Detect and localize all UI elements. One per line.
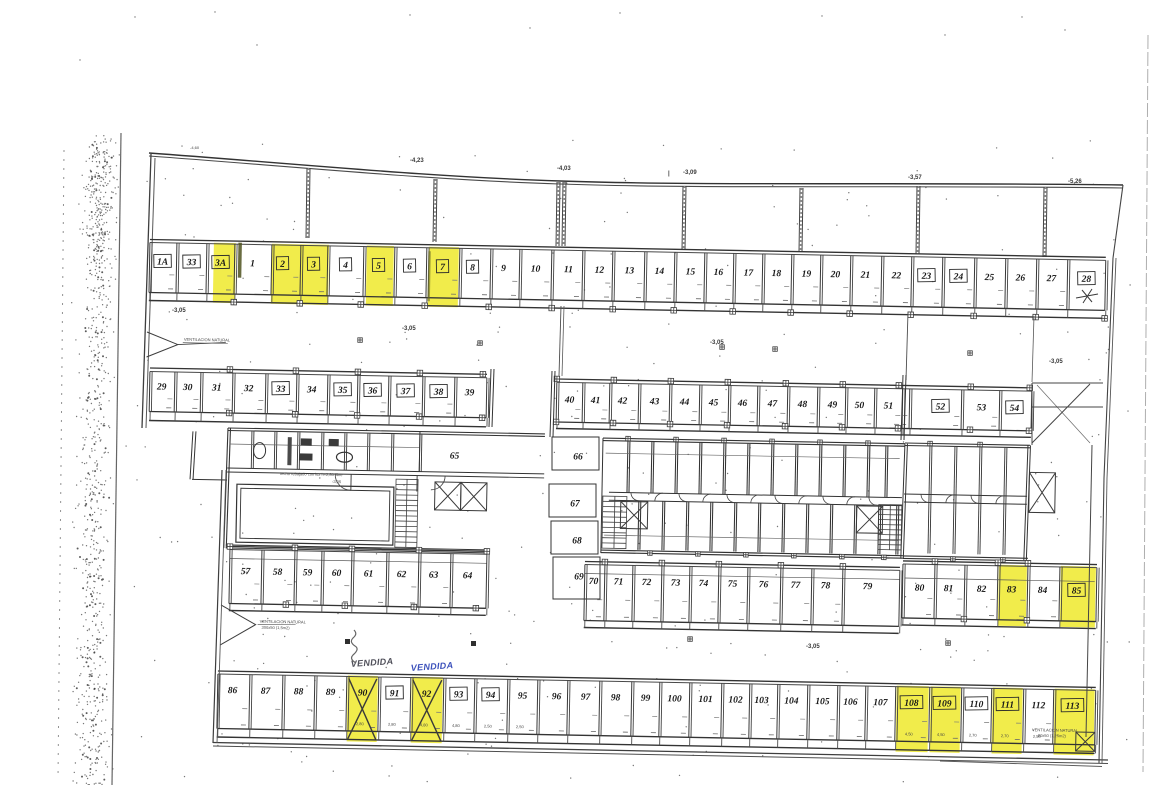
- svg-text:88: 88: [294, 687, 304, 697]
- svg-text:12: 12: [595, 266, 605, 276]
- svg-text:2,70: 2,70: [969, 733, 978, 738]
- svg-text:10: 10: [531, 265, 541, 275]
- svg-text:38: 38: [433, 388, 444, 398]
- svg-text:92: 92: [422, 690, 432, 700]
- svg-text:46: 46: [737, 399, 748, 409]
- svg-text:300x50 (1,5m2): 300x50 (1,5m2): [262, 625, 291, 631]
- svg-text:-3,57: -3,57: [908, 175, 922, 181]
- svg-text:17: 17: [744, 268, 755, 278]
- svg-text:41: 41: [590, 396, 601, 406]
- svg-text:60: 60: [332, 569, 342, 579]
- svg-text:86: 86: [228, 686, 238, 696]
- svg-text:51: 51: [884, 402, 894, 412]
- svg-text:4: 4: [342, 261, 348, 271]
- svg-text:50: 50: [855, 401, 865, 411]
- svg-text:109: 109: [937, 699, 952, 709]
- svg-text:102: 102: [728, 695, 743, 705]
- svg-text:4,80: 4,80: [452, 723, 461, 728]
- svg-text:5: 5: [376, 262, 381, 272]
- svg-text:2,70: 2,70: [1001, 733, 1010, 738]
- svg-text:37: 37: [400, 387, 412, 397]
- svg-text:9: 9: [501, 264, 506, 274]
- svg-text:1: 1: [250, 259, 255, 269]
- svg-text:-4,60: -4,60: [190, 145, 200, 150]
- svg-text:94: 94: [486, 691, 496, 701]
- svg-text:58: 58: [273, 568, 283, 578]
- svg-text:59: 59: [303, 568, 313, 578]
- svg-text:43: 43: [649, 397, 660, 407]
- svg-text:54: 54: [1010, 404, 1020, 414]
- svg-text:23: 23: [921, 272, 932, 282]
- svg-text:112: 112: [1031, 701, 1045, 711]
- svg-text:45: 45: [708, 398, 719, 408]
- svg-text:4,50: 4,50: [937, 732, 946, 737]
- svg-text:76: 76: [759, 580, 769, 590]
- svg-text:-3,05: -3,05: [806, 644, 820, 650]
- svg-text:49: 49: [827, 400, 838, 410]
- svg-text:97: 97: [581, 693, 592, 703]
- svg-text:18: 18: [772, 269, 782, 279]
- svg-text:99: 99: [641, 694, 651, 704]
- svg-text:80x50 (1,25m2): 80x50 (1,25m2): [1038, 733, 1067, 739]
- svg-text:103: 103: [754, 696, 769, 706]
- svg-text:105: 105: [815, 697, 830, 707]
- svg-text:78: 78: [821, 581, 831, 591]
- svg-text:33: 33: [275, 385, 286, 395]
- svg-text:69: 69: [574, 572, 584, 582]
- svg-text:2,50: 2,50: [516, 724, 525, 729]
- svg-text:13: 13: [625, 266, 635, 276]
- svg-text:52: 52: [936, 402, 946, 412]
- svg-text:36: 36: [367, 386, 378, 396]
- svg-text:67: 67: [570, 499, 581, 509]
- svg-text:31: 31: [211, 384, 222, 394]
- svg-text:2: 2: [279, 260, 285, 270]
- svg-text:63: 63: [429, 571, 439, 581]
- svg-text:48: 48: [797, 400, 808, 410]
- svg-text:40: 40: [564, 396, 575, 406]
- svg-text:53: 53: [977, 403, 987, 413]
- svg-text:47: 47: [767, 399, 779, 409]
- svg-text:61: 61: [364, 569, 374, 579]
- svg-text:4,80: 4,80: [420, 722, 429, 727]
- svg-text:110: 110: [969, 700, 983, 710]
- svg-text:11: 11: [564, 265, 573, 275]
- svg-text:113: 113: [1065, 702, 1079, 712]
- svg-text:44: 44: [679, 398, 690, 408]
- svg-text:84: 84: [1038, 586, 1048, 596]
- svg-text:66: 66: [573, 452, 583, 462]
- svg-text:90: 90: [358, 689, 368, 699]
- svg-text:2,50: 2,50: [484, 723, 493, 728]
- svg-text:107: 107: [873, 698, 889, 708]
- svg-text:VENTILACION NATURAL: VENTILACION NATURAL: [184, 337, 231, 343]
- svg-text:24: 24: [953, 272, 964, 282]
- svg-text:79: 79: [863, 582, 873, 592]
- svg-text:-3,05: -3,05: [1049, 359, 1063, 365]
- svg-text:95: 95: [518, 692, 528, 702]
- svg-text:73: 73: [671, 579, 681, 589]
- svg-text:96: 96: [552, 692, 562, 702]
- svg-text:89: 89: [326, 688, 336, 698]
- svg-text:4,50: 4,50: [905, 731, 914, 736]
- svg-text:20: 20: [830, 270, 841, 280]
- svg-text:14: 14: [655, 267, 665, 277]
- svg-text:16: 16: [714, 268, 724, 278]
- svg-text:1A: 1A: [157, 258, 168, 268]
- svg-text:3A: 3A: [214, 259, 226, 269]
- svg-text:35: 35: [337, 386, 348, 396]
- svg-text:100: 100: [667, 694, 682, 704]
- svg-text:-3,05: -3,05: [402, 326, 416, 332]
- svg-text:25: 25: [984, 273, 995, 283]
- svg-text:15: 15: [686, 267, 696, 277]
- svg-text:65: 65: [450, 452, 460, 462]
- svg-text:34: 34: [306, 385, 317, 395]
- svg-text:39: 39: [464, 388, 475, 398]
- svg-text:32: 32: [243, 384, 254, 394]
- svg-text:72: 72: [642, 578, 652, 588]
- svg-text:27: 27: [1046, 274, 1058, 284]
- svg-text:3: 3: [310, 260, 316, 270]
- svg-text:68: 68: [572, 536, 582, 546]
- svg-text:-3,05: -3,05: [172, 308, 186, 314]
- svg-text:108: 108: [904, 699, 919, 709]
- svg-text:98: 98: [611, 693, 621, 703]
- svg-text:80: 80: [915, 584, 925, 594]
- svg-text:77: 77: [791, 581, 802, 591]
- svg-text:33: 33: [186, 258, 197, 268]
- svg-text:57: 57: [241, 567, 252, 577]
- svg-text:29: 29: [156, 383, 167, 393]
- svg-text:83: 83: [1007, 585, 1017, 595]
- svg-text:104: 104: [784, 696, 799, 706]
- svg-text:8: 8: [470, 263, 475, 273]
- svg-text:28: 28: [1081, 275, 1092, 285]
- svg-text:21: 21: [860, 271, 871, 281]
- svg-text:85: 85: [1072, 587, 1082, 597]
- svg-text:-4,03: -4,03: [557, 166, 571, 172]
- svg-text:2,80: 2,80: [356, 721, 365, 726]
- svg-text:30: 30: [182, 383, 193, 393]
- svg-text:2,80: 2,80: [388, 722, 397, 727]
- svg-text:62: 62: [397, 570, 407, 580]
- svg-text:74: 74: [699, 579, 709, 589]
- svg-text:81: 81: [944, 584, 954, 594]
- svg-text:19: 19: [802, 270, 812, 280]
- svg-text:106: 106: [843, 698, 858, 708]
- svg-text:82: 82: [977, 585, 987, 595]
- svg-text:111: 111: [1001, 701, 1014, 711]
- svg-text:75: 75: [728, 580, 738, 590]
- svg-text:-4,23: -4,23: [410, 158, 424, 164]
- svg-text:101: 101: [698, 695, 712, 705]
- svg-text:93: 93: [454, 690, 464, 700]
- svg-text:64: 64: [463, 571, 473, 581]
- svg-text:70: 70: [589, 577, 599, 587]
- svg-text:91: 91: [390, 689, 400, 699]
- svg-text:VENTILACION NATURAL: VENTILACION NATURAL: [260, 619, 307, 625]
- svg-text:42: 42: [617, 397, 628, 407]
- svg-text:71: 71: [614, 577, 624, 587]
- svg-text:6: 6: [407, 262, 412, 272]
- svg-text:26: 26: [1015, 274, 1026, 284]
- svg-text:-3,09: -3,09: [683, 170, 697, 176]
- svg-text:22: 22: [891, 271, 902, 281]
- svg-text:87: 87: [261, 687, 272, 697]
- svg-text:-5,26: -5,26: [1068, 179, 1082, 185]
